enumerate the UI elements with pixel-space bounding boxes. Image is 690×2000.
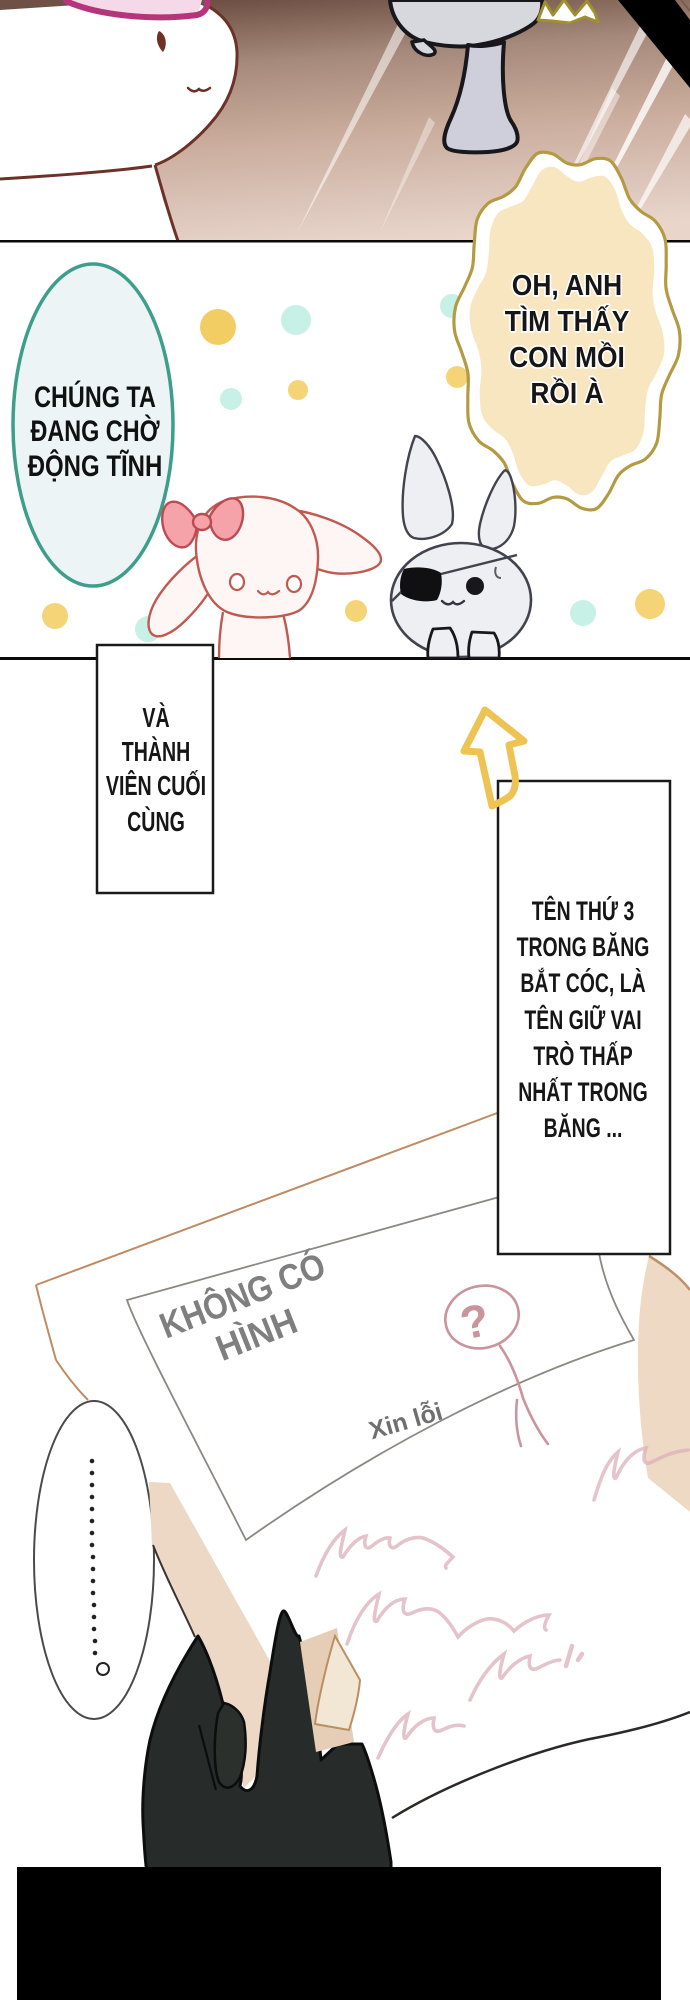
svg-text:BĂNG ...: BĂNG ... [544,1112,623,1143]
svg-text:OH, ANH: OH, ANH [512,269,622,301]
svg-text:CON MỒI: CON MỒI [509,341,625,373]
svg-text:TRONG BĂNG: TRONG BĂNG [517,931,650,962]
svg-text:THÀNH: THÀNH [122,736,191,768]
svg-text:TÊN THỨ 3: TÊN THỨ 3 [532,895,634,926]
svg-text:VIÊN CUỐI: VIÊN CUỐI [106,770,206,802]
svg-text:CHÚNG TA: CHÚNG TA [34,379,156,414]
svg-text:RỒI À: RỒI À [530,377,603,409]
svg-text:VÀ: VÀ [142,702,169,734]
svg-text:TRÒ THẤP: TRÒ THẤP [533,1040,632,1071]
svg-text:NHẤT TRONG: NHẤT TRONG [518,1076,648,1107]
svg-text:ĐỘNG TĨNH: ĐỘNG TĨNH [28,447,163,482]
svg-text:TÌM THẤY: TÌM THẤY [505,305,630,337]
svg-text:CÙNG: CÙNG [127,806,185,838]
svg-text:BẮT CÓC, LÀ: BẮT CÓC, LÀ [520,967,645,998]
svg-text:TÊN GIỮ VAI: TÊN GIỮ VAI [524,1004,641,1035]
svg-text:ĐANG CHỜ: ĐANG CHỜ [30,413,159,448]
